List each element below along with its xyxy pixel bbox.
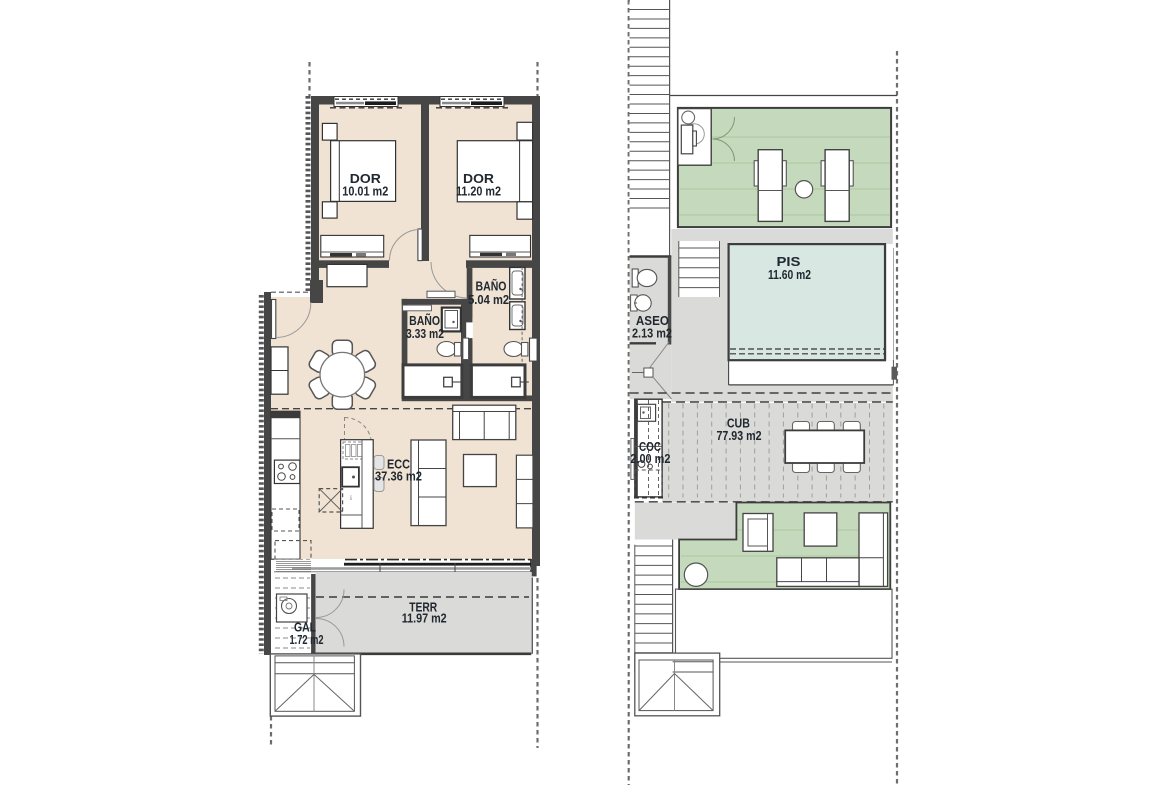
svg-text:3.33 m2: 3.33 m2: [406, 326, 444, 341]
svg-text:5.04 m2: 5.04 m2: [468, 292, 509, 307]
svg-text:10.01 m2: 10.01 m2: [342, 184, 388, 199]
svg-text:11.60 m2: 11.60 m2: [768, 267, 811, 282]
svg-text:11.20 m2: 11.20 m2: [456, 184, 501, 199]
svg-text:37.36 m2: 37.36 m2: [375, 469, 422, 484]
svg-text:2.00 m2: 2.00 m2: [630, 451, 670, 466]
svg-text:i: i: [350, 494, 352, 502]
svg-text:11.97 m2: 11.97 m2: [402, 611, 447, 626]
svg-text:77.93 m2: 77.93 m2: [717, 428, 762, 443]
svg-text:1.72 m2: 1.72 m2: [290, 632, 324, 647]
svg-text:2.13 m2: 2.13 m2: [632, 326, 672, 341]
